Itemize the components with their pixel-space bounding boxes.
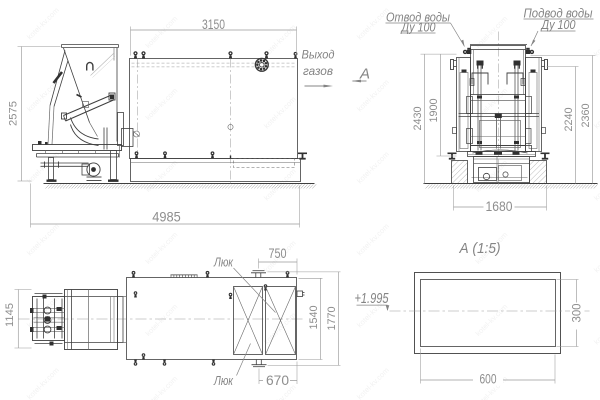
svg-text:Люк: Люк [213,374,234,388]
svg-text:750: 750 [269,245,287,261]
svg-text:3150: 3150 [202,16,225,32]
svg-text:2240: 2240 [563,108,575,132]
svg-text:газов: газов [303,64,333,78]
svg-text:Ду 100: Ду 100 [540,17,576,32]
svg-text:Люк: Люк [213,256,234,270]
svg-text:1145: 1145 [4,303,16,327]
svg-text:670: 670 [266,372,289,388]
svg-text:2575: 2575 [8,101,20,126]
svg-text:2360: 2360 [580,104,592,128]
svg-text:1540: 1540 [308,306,320,330]
svg-text:1680: 1680 [486,198,513,214]
svg-text:300: 300 [569,303,583,322]
svg-text:4985: 4985 [152,209,181,225]
svg-text:+1.995: +1.995 [355,290,389,307]
svg-text:1900: 1900 [428,99,440,123]
svg-text:А (1:5): А (1:5) [459,240,501,257]
svg-text:Выход: Выход [302,48,335,62]
svg-text:1770: 1770 [326,307,338,331]
svg-text:2430: 2430 [412,107,424,131]
svg-text:Ду 100: Ду 100 [400,20,436,35]
svg-text:600: 600 [480,371,497,387]
